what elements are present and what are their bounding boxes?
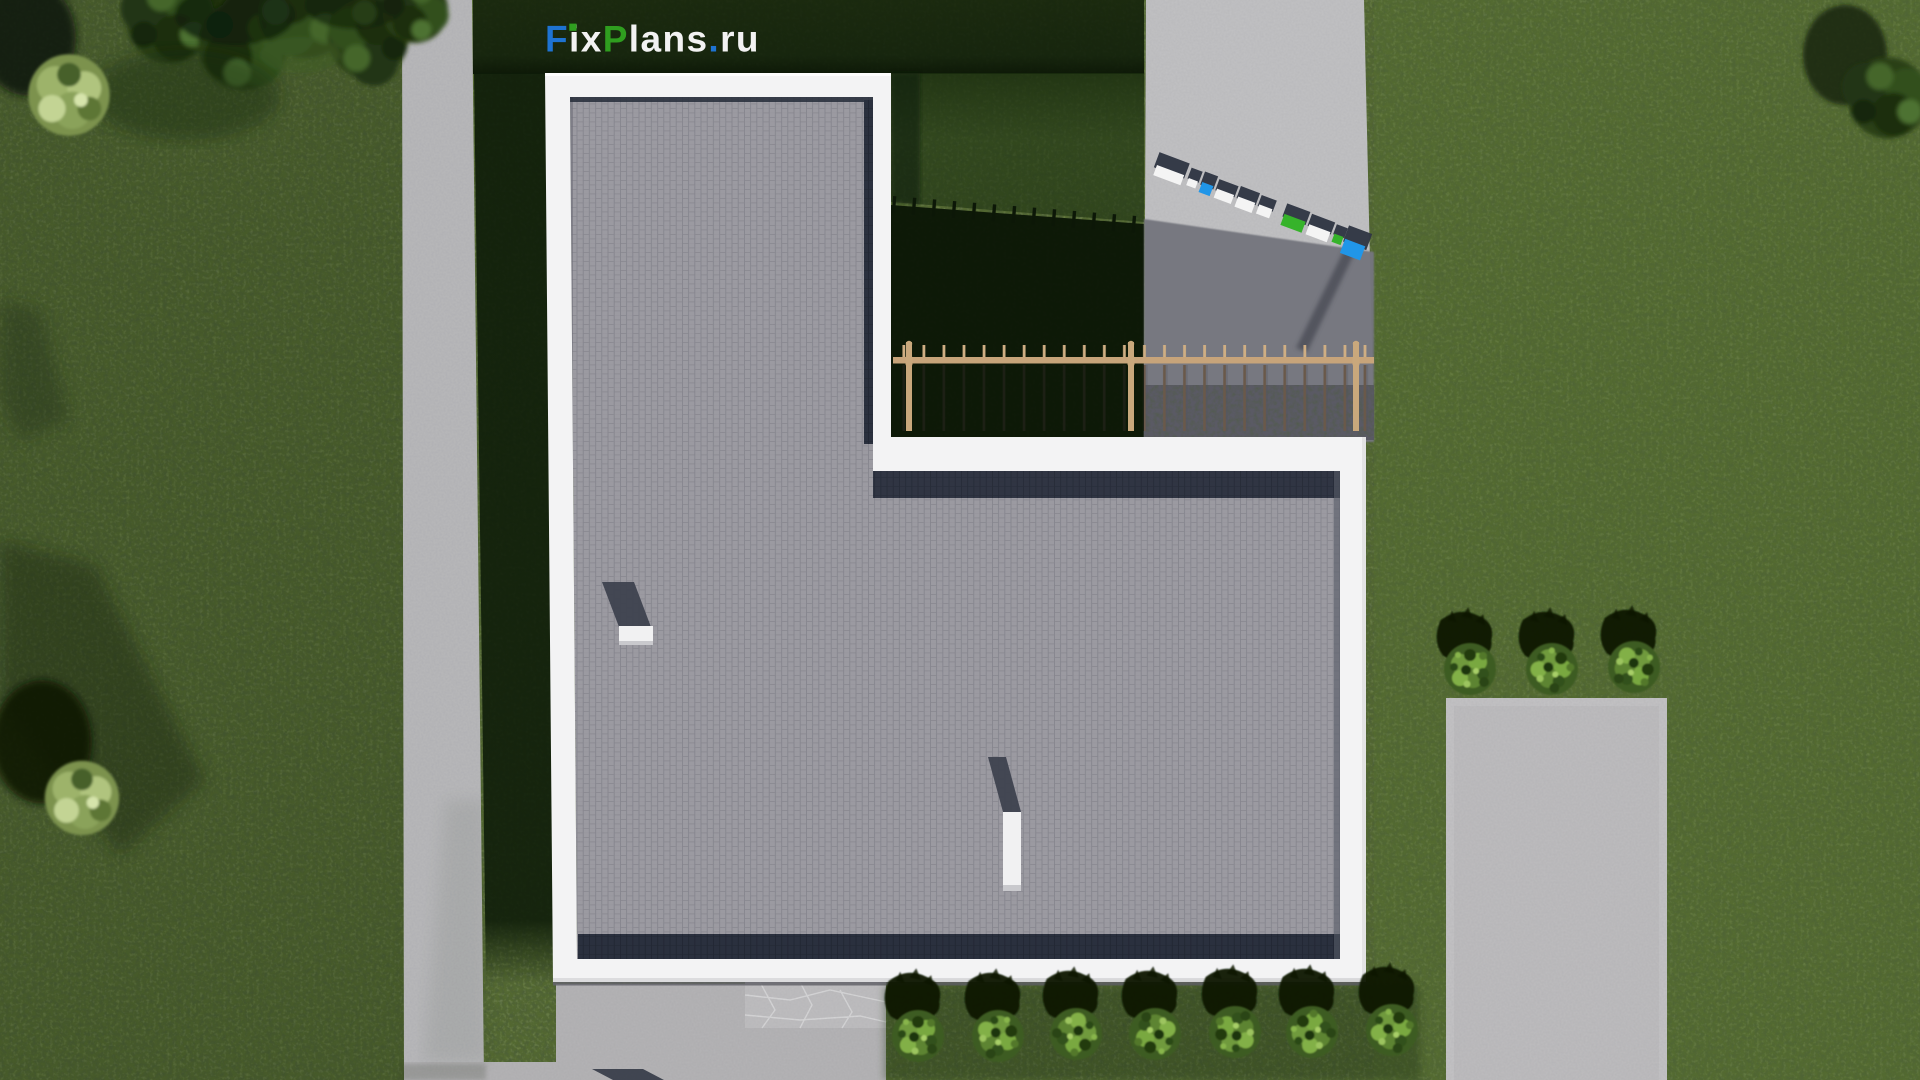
svg-text:FixPlans.ru: FixPlans.ru [545, 19, 760, 60]
